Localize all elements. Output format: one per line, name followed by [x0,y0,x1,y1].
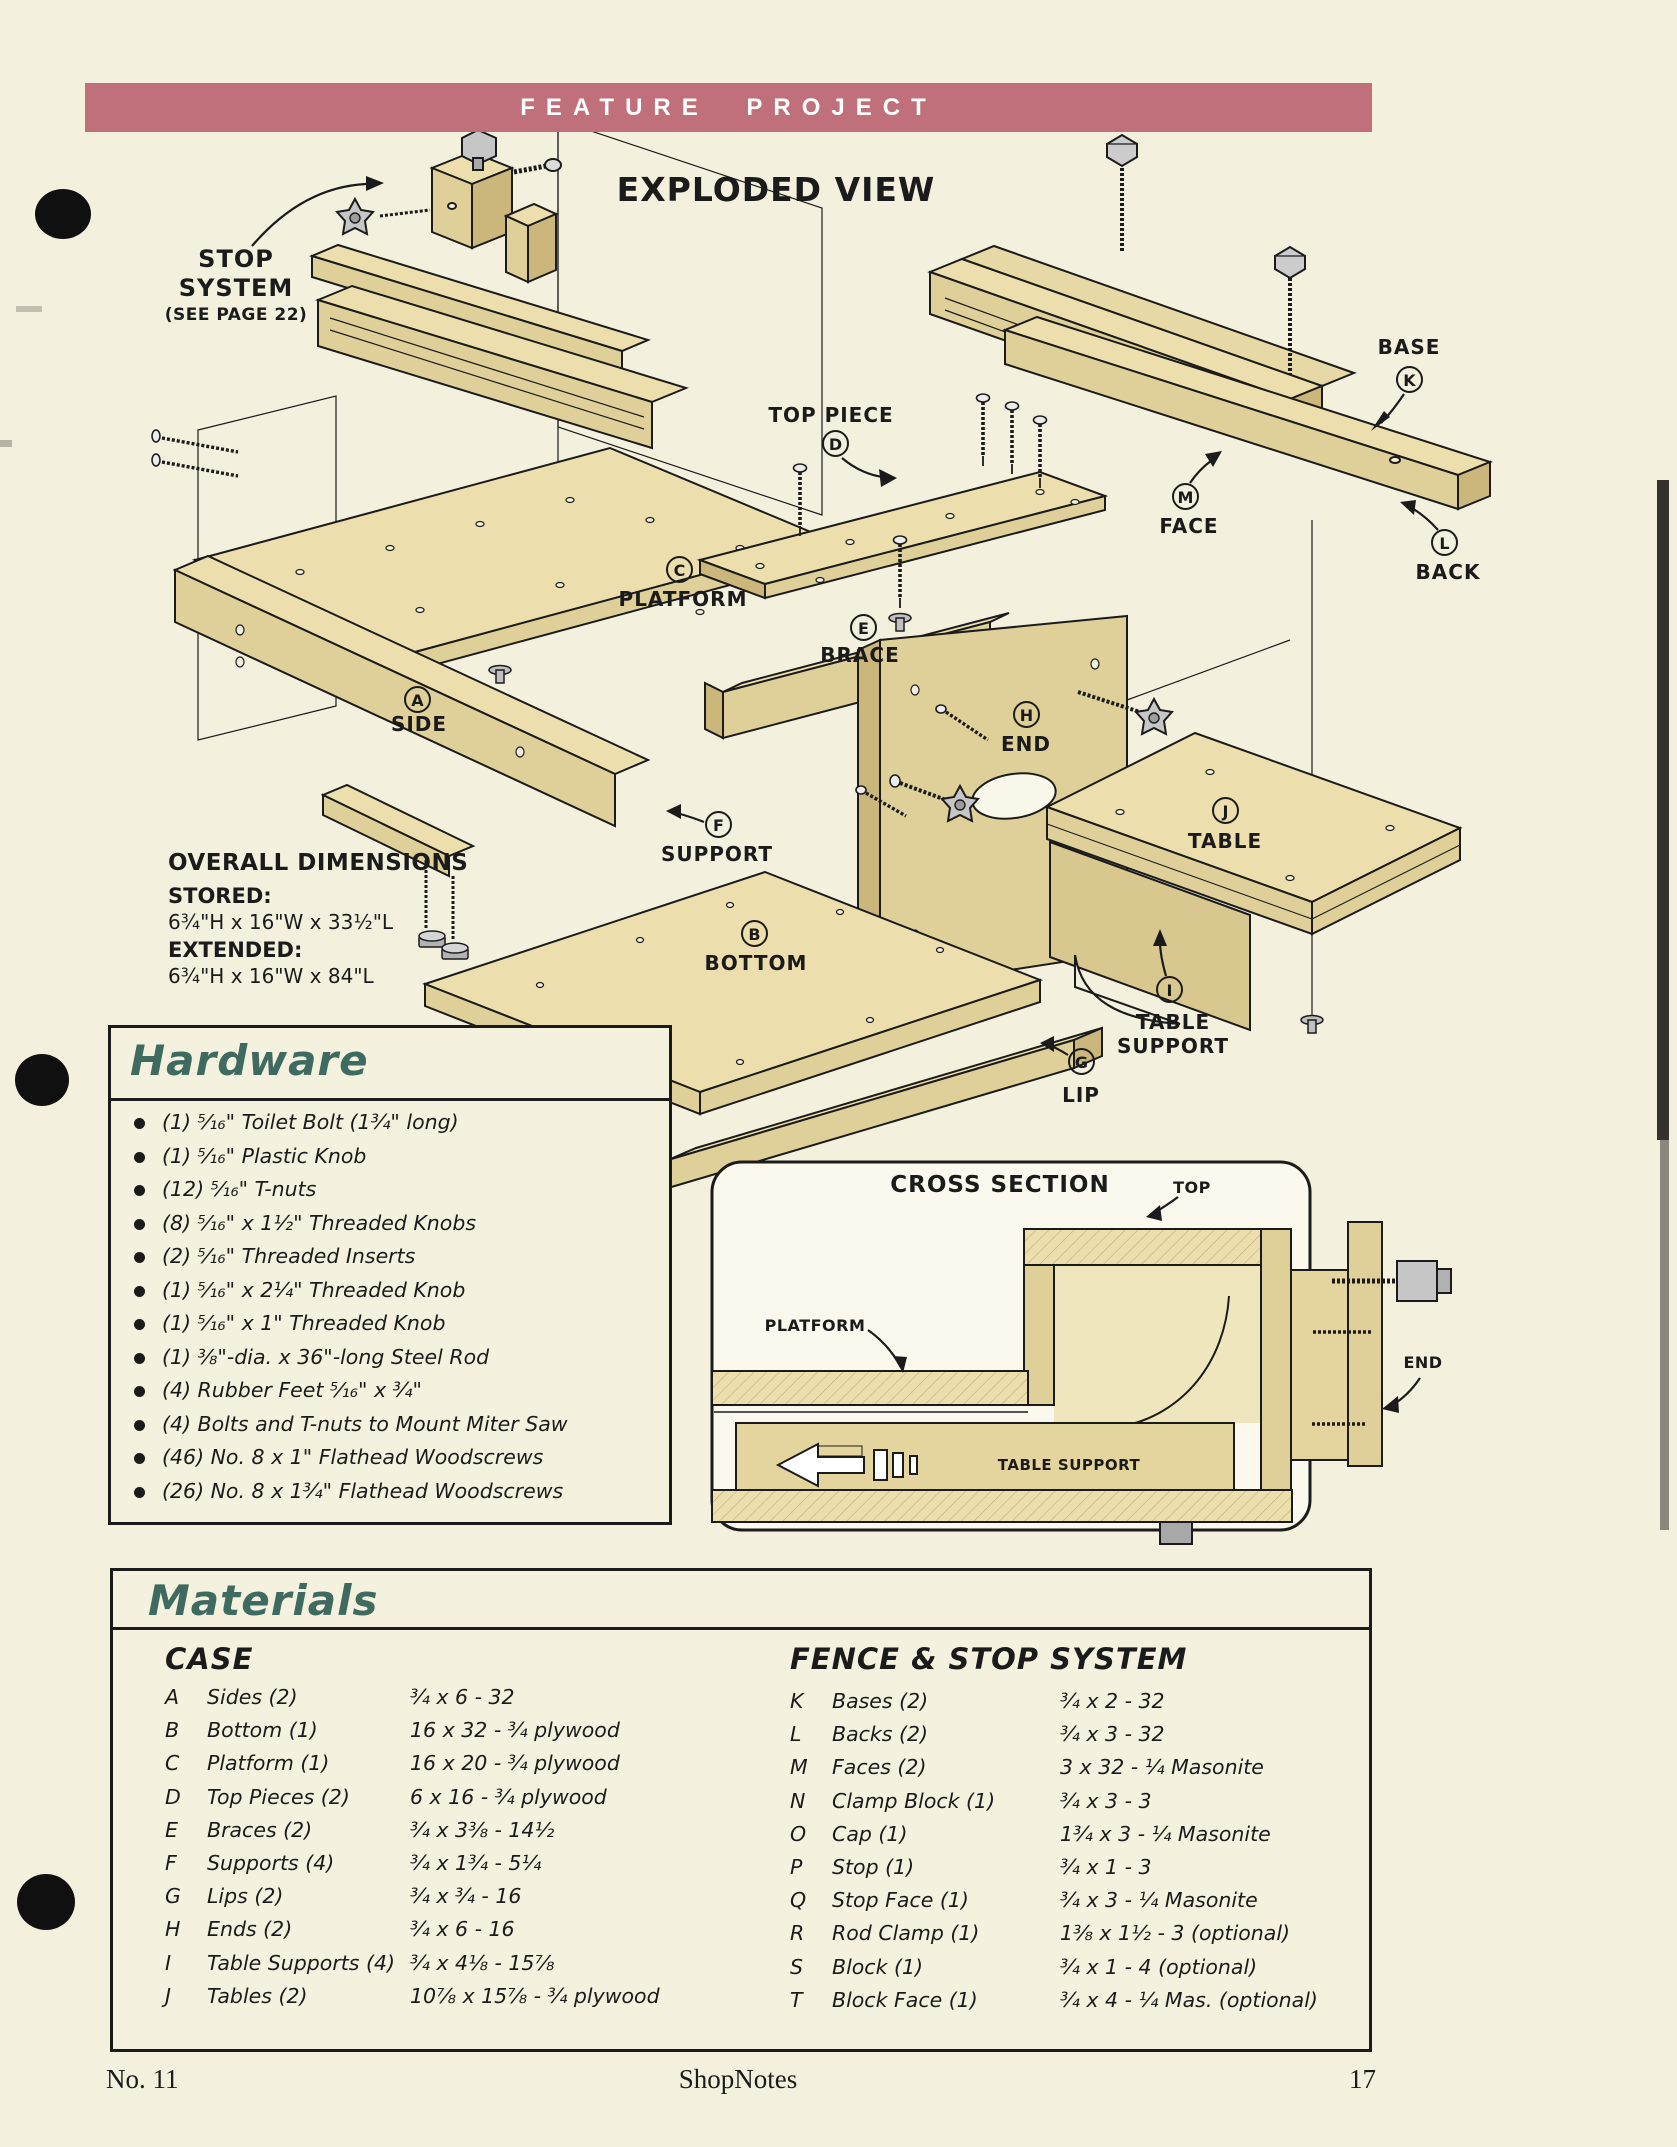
dimensions-stored-value: 6¾"H x 16"W x 33½"L [168,910,393,934]
material-name: Rod Clamp (1) [832,1917,1060,1950]
part-label-back: BACK [1388,561,1508,583]
footer-page-number: 17 [1310,2064,1376,2095]
feature-banner-label: FEATURE PROJECT [520,94,937,122]
material-row: SBlock (1)¾ x 1 - 4 (optional) [790,1951,1370,1984]
cross-label-platform: PLATFORM [755,1316,875,1335]
materials-case-rows: ASides (2)¾ x 6 - 32 BBottom (1)16 x 32 … [165,1681,765,2013]
hardware-item: (46) No. 8 x 1" Flathead Woodscrews [128,1441,668,1475]
material-size: ¾ x 1¾ - 5¼ [410,1847,765,1880]
material-letter: L [790,1718,832,1751]
material-letter: J [165,1980,207,2013]
material-name: Sides (2) [207,1681,410,1714]
material-name: Stop Face (1) [832,1884,1060,1917]
material-name: Supports (4) [207,1847,410,1880]
dimensions-heading: OVERALL DIMENSIONS [168,850,468,876]
hardware-item: (4) Rubber Feet ⁵⁄₁₆" x ¾" [128,1374,668,1408]
material-letter: E [165,1814,207,1847]
material-row: FSupports (4)¾ x 1¾ - 5¼ [165,1847,765,1880]
part-label-lip: LIP [1041,1084,1121,1106]
material-row: GLips (2)¾ x ¾ - 16 [165,1880,765,1913]
material-letter: I [165,1947,207,1980]
material-size: ¾ x 4 - ¼ Mas. (optional) [1060,1984,1370,2017]
material-size: ¾ x 4⅛ - 15⅞ [410,1947,765,1980]
hardware-list: (1) ⁵⁄₁₆" Toilet Bolt (1¾" long) (1) ⁵⁄₁… [128,1106,668,1508]
material-name: Table Supports (4) [207,1947,410,1980]
material-letter: B [165,1714,207,1747]
material-letter: M [790,1751,832,1784]
part-circle-platform: C [666,556,693,583]
material-name: Tables (2) [207,1980,410,2013]
part-label-bottom: BOTTOM [696,952,816,974]
material-row: RRod Clamp (1)1⅜ x 1½ - 3 (optional) [790,1917,1370,1950]
part-label-table-support: TABLE SUPPORT [1093,1010,1253,1058]
materials-title: Materials [148,1576,379,1625]
material-size: ¾ x 1 - 3 [1060,1851,1370,1884]
fence-rails-left [312,245,686,448]
cross-label-table-support: TABLE SUPPORT [969,1456,1169,1474]
part-circle-side: A [404,686,431,713]
material-letter: A [165,1681,207,1714]
hardware-item: (1) ⅜"-dia. x 36"-long Steel Rod [128,1341,668,1375]
part-circle-face: M [1172,483,1199,510]
material-row: JTables (2)10⅞ x 15⅞ - ¾ plywood [165,1980,765,2013]
material-size: 1⅜ x 1½ - 3 (optional) [1060,1917,1370,1950]
material-row: BBottom (1)16 x 32 - ¾ plywood [165,1714,765,1747]
material-name: Stop (1) [832,1851,1060,1884]
part-label-platform: PLATFORM [608,588,758,610]
part-label-face: FACE [1129,515,1249,537]
material-letter: O [790,1818,832,1851]
material-size: ¾ x 3 - ¼ Masonite [1060,1884,1370,1917]
footer-magazine: ShopNotes [588,2064,888,2095]
dimensions-extended-value: 6¾"H x 16"W x 84"L [168,964,374,988]
material-letter: C [165,1747,207,1780]
material-row: NClamp Block (1)¾ x 3 - 3 [790,1785,1370,1818]
material-name: Top Pieces (2) [207,1781,410,1814]
part-circle-lip: G [1068,1048,1095,1075]
material-name: Block (1) [832,1951,1060,1984]
cross-label-end: END [1383,1353,1463,1372]
part-circle-bottom: B [741,920,768,947]
hardware-item: (12) ⁵⁄₁₆" T-nuts [128,1173,668,1207]
part-label-side: SIDE [369,713,469,735]
material-letter: T [790,1984,832,2017]
material-letter: N [790,1785,832,1818]
material-size: ¾ x 3 - 3 [1060,1785,1370,1818]
hardware-item: (2) ⁵⁄₁₆" Threaded Inserts [128,1240,668,1274]
materials-fence-rows: KBases (2)¾ x 2 - 32 LBacks (2)¾ x 3 - 3… [790,1685,1370,2017]
cross-section-title: CROSS SECTION [850,1172,1150,1198]
material-size: 16 x 32 - ¾ plywood [410,1714,765,1747]
hardware-item: (8) ⁵⁄₁₆" x 1½" Threaded Knobs [128,1207,668,1241]
material-size: ¾ x 2 - 32 [1060,1685,1370,1718]
material-size: ¾ x 1 - 4 (optional) [1060,1951,1370,1984]
cross-label-top: TOP [1162,1178,1222,1197]
material-row: ASides (2)¾ x 6 - 32 [165,1681,765,1714]
part-label-table: TABLE [1165,830,1285,852]
hardware-rule [108,1098,672,1101]
material-row: ITable Supports (4)¾ x 4⅛ - 15⅞ [165,1947,765,1980]
part-circle-brace: E [850,614,877,641]
material-size: 16 x 20 - ¾ plywood [410,1747,765,1780]
material-letter: K [790,1685,832,1718]
part-circle-end: H [1013,701,1040,728]
cross-section-diagram [712,1162,1451,1544]
material-name: Block Face (1) [832,1984,1060,2017]
material-letter: G [165,1880,207,1913]
material-row: KBases (2)¾ x 2 - 32 [790,1685,1370,1718]
part-circle-support: F [705,811,732,838]
material-name: Cap (1) [832,1818,1060,1851]
material-size: 1¾ x 3 - ¼ Masonite [1060,1818,1370,1851]
material-size: ¾ x ¾ - 16 [410,1880,765,1913]
material-name: Platform (1) [207,1747,410,1780]
part-circle-table: J [1212,797,1239,824]
material-size: ¾ x 6 - 16 [410,1913,765,1946]
part-circle-base: K [1396,366,1423,393]
part-label-base: BASE [1349,336,1469,358]
material-letter: H [165,1913,207,1946]
material-name: Bottom (1) [207,1714,410,1747]
material-size: 3 x 32 - ¼ Masonite [1060,1751,1370,1784]
material-row: MFaces (2)3 x 32 - ¼ Masonite [790,1751,1370,1784]
dimensions-stored-label: STORED: [168,884,272,908]
hardware-item: (1) ⁵⁄₁₆" Plastic Knob [128,1140,668,1174]
part-label-end: END [976,733,1076,755]
material-row: CPlatform (1)16 x 20 - ¾ plywood [165,1747,765,1780]
material-row: QStop Face (1)¾ x 3 - ¼ Masonite [790,1884,1370,1917]
material-letter: R [790,1917,832,1950]
material-letter: P [790,1851,832,1884]
material-name: Clamp Block (1) [832,1785,1060,1818]
material-letter: F [165,1847,207,1880]
material-name: Faces (2) [832,1751,1060,1784]
material-name: Braces (2) [207,1814,410,1847]
materials-case-heading: CASE [165,1642,253,1676]
hardware-title: Hardware [130,1036,369,1085]
exploded-view-title: EXPLODED VIEW [576,170,976,209]
punch-holes [15,189,91,1930]
materials-rule [110,1627,1372,1630]
part-circle-back: L [1431,529,1458,556]
material-row: DTop Pieces (2)6 x 16 - ¾ plywood [165,1781,765,1814]
part-label-top-piece: TOP PIECE [751,404,911,426]
dimensions-extended-label: EXTENDED: [168,938,302,962]
hardware-item: (26) No. 8 x 1¾" Flathead Woodscrews [128,1475,668,1509]
stop-system-note: (SEE PAGE 22) [136,305,336,325]
material-row: EBraces (2)¾ x 3⅜ - 14½ [165,1814,765,1847]
feature-banner: FEATURE PROJECT [85,83,1372,132]
footer-issue: No. 11 [106,2064,179,2095]
magazine-page: FEATURE PROJECT EXPLODED VIEW STOP SYSTE… [0,0,1677,2147]
part-label-brace: BRACE [800,644,920,666]
stop-system-label: STOP SYSTEM [146,245,326,303]
material-row: LBacks (2)¾ x 3 - 32 [790,1718,1370,1751]
hardware-item: (1) ⁵⁄₁₆" x 1" Threaded Knob [128,1307,668,1341]
material-letter: D [165,1781,207,1814]
hardware-item: (1) ⁵⁄₁₆" x 2¼" Threaded Knob [128,1274,668,1308]
material-name: Backs (2) [832,1718,1060,1751]
material-size: 6 x 16 - ¾ plywood [410,1781,765,1814]
hardware-item: (1) ⁵⁄₁₆" Toilet Bolt (1¾" long) [128,1106,668,1140]
material-size: ¾ x 3⅜ - 14½ [410,1814,765,1847]
material-size: ¾ x 6 - 32 [410,1681,765,1714]
part-circle-top-piece: D [822,430,849,457]
material-letter: Q [790,1884,832,1917]
material-size: ¾ x 3 - 32 [1060,1718,1370,1751]
material-name: Ends (2) [207,1913,410,1946]
material-name: Bases (2) [832,1685,1060,1718]
material-row: OCap (1)1¾ x 3 - ¼ Masonite [790,1818,1370,1851]
material-letter: S [790,1951,832,1984]
part-circle-table-support: I [1156,976,1183,1003]
material-row: HEnds (2)¾ x 6 - 16 [165,1913,765,1946]
material-name: Lips (2) [207,1880,410,1913]
material-row: TBlock Face (1)¾ x 4 - ¼ Mas. (optional) [790,1984,1370,2017]
material-size: 10⅞ x 15⅞ - ¾ plywood [410,1980,765,2013]
part-label-support: SUPPORT [652,843,782,865]
material-row: PStop (1)¾ x 1 - 3 [790,1851,1370,1884]
materials-fence-heading: FENCE & STOP SYSTEM [790,1642,1187,1676]
hardware-item: (4) Bolts and T-nuts to Mount Miter Saw [128,1408,668,1442]
